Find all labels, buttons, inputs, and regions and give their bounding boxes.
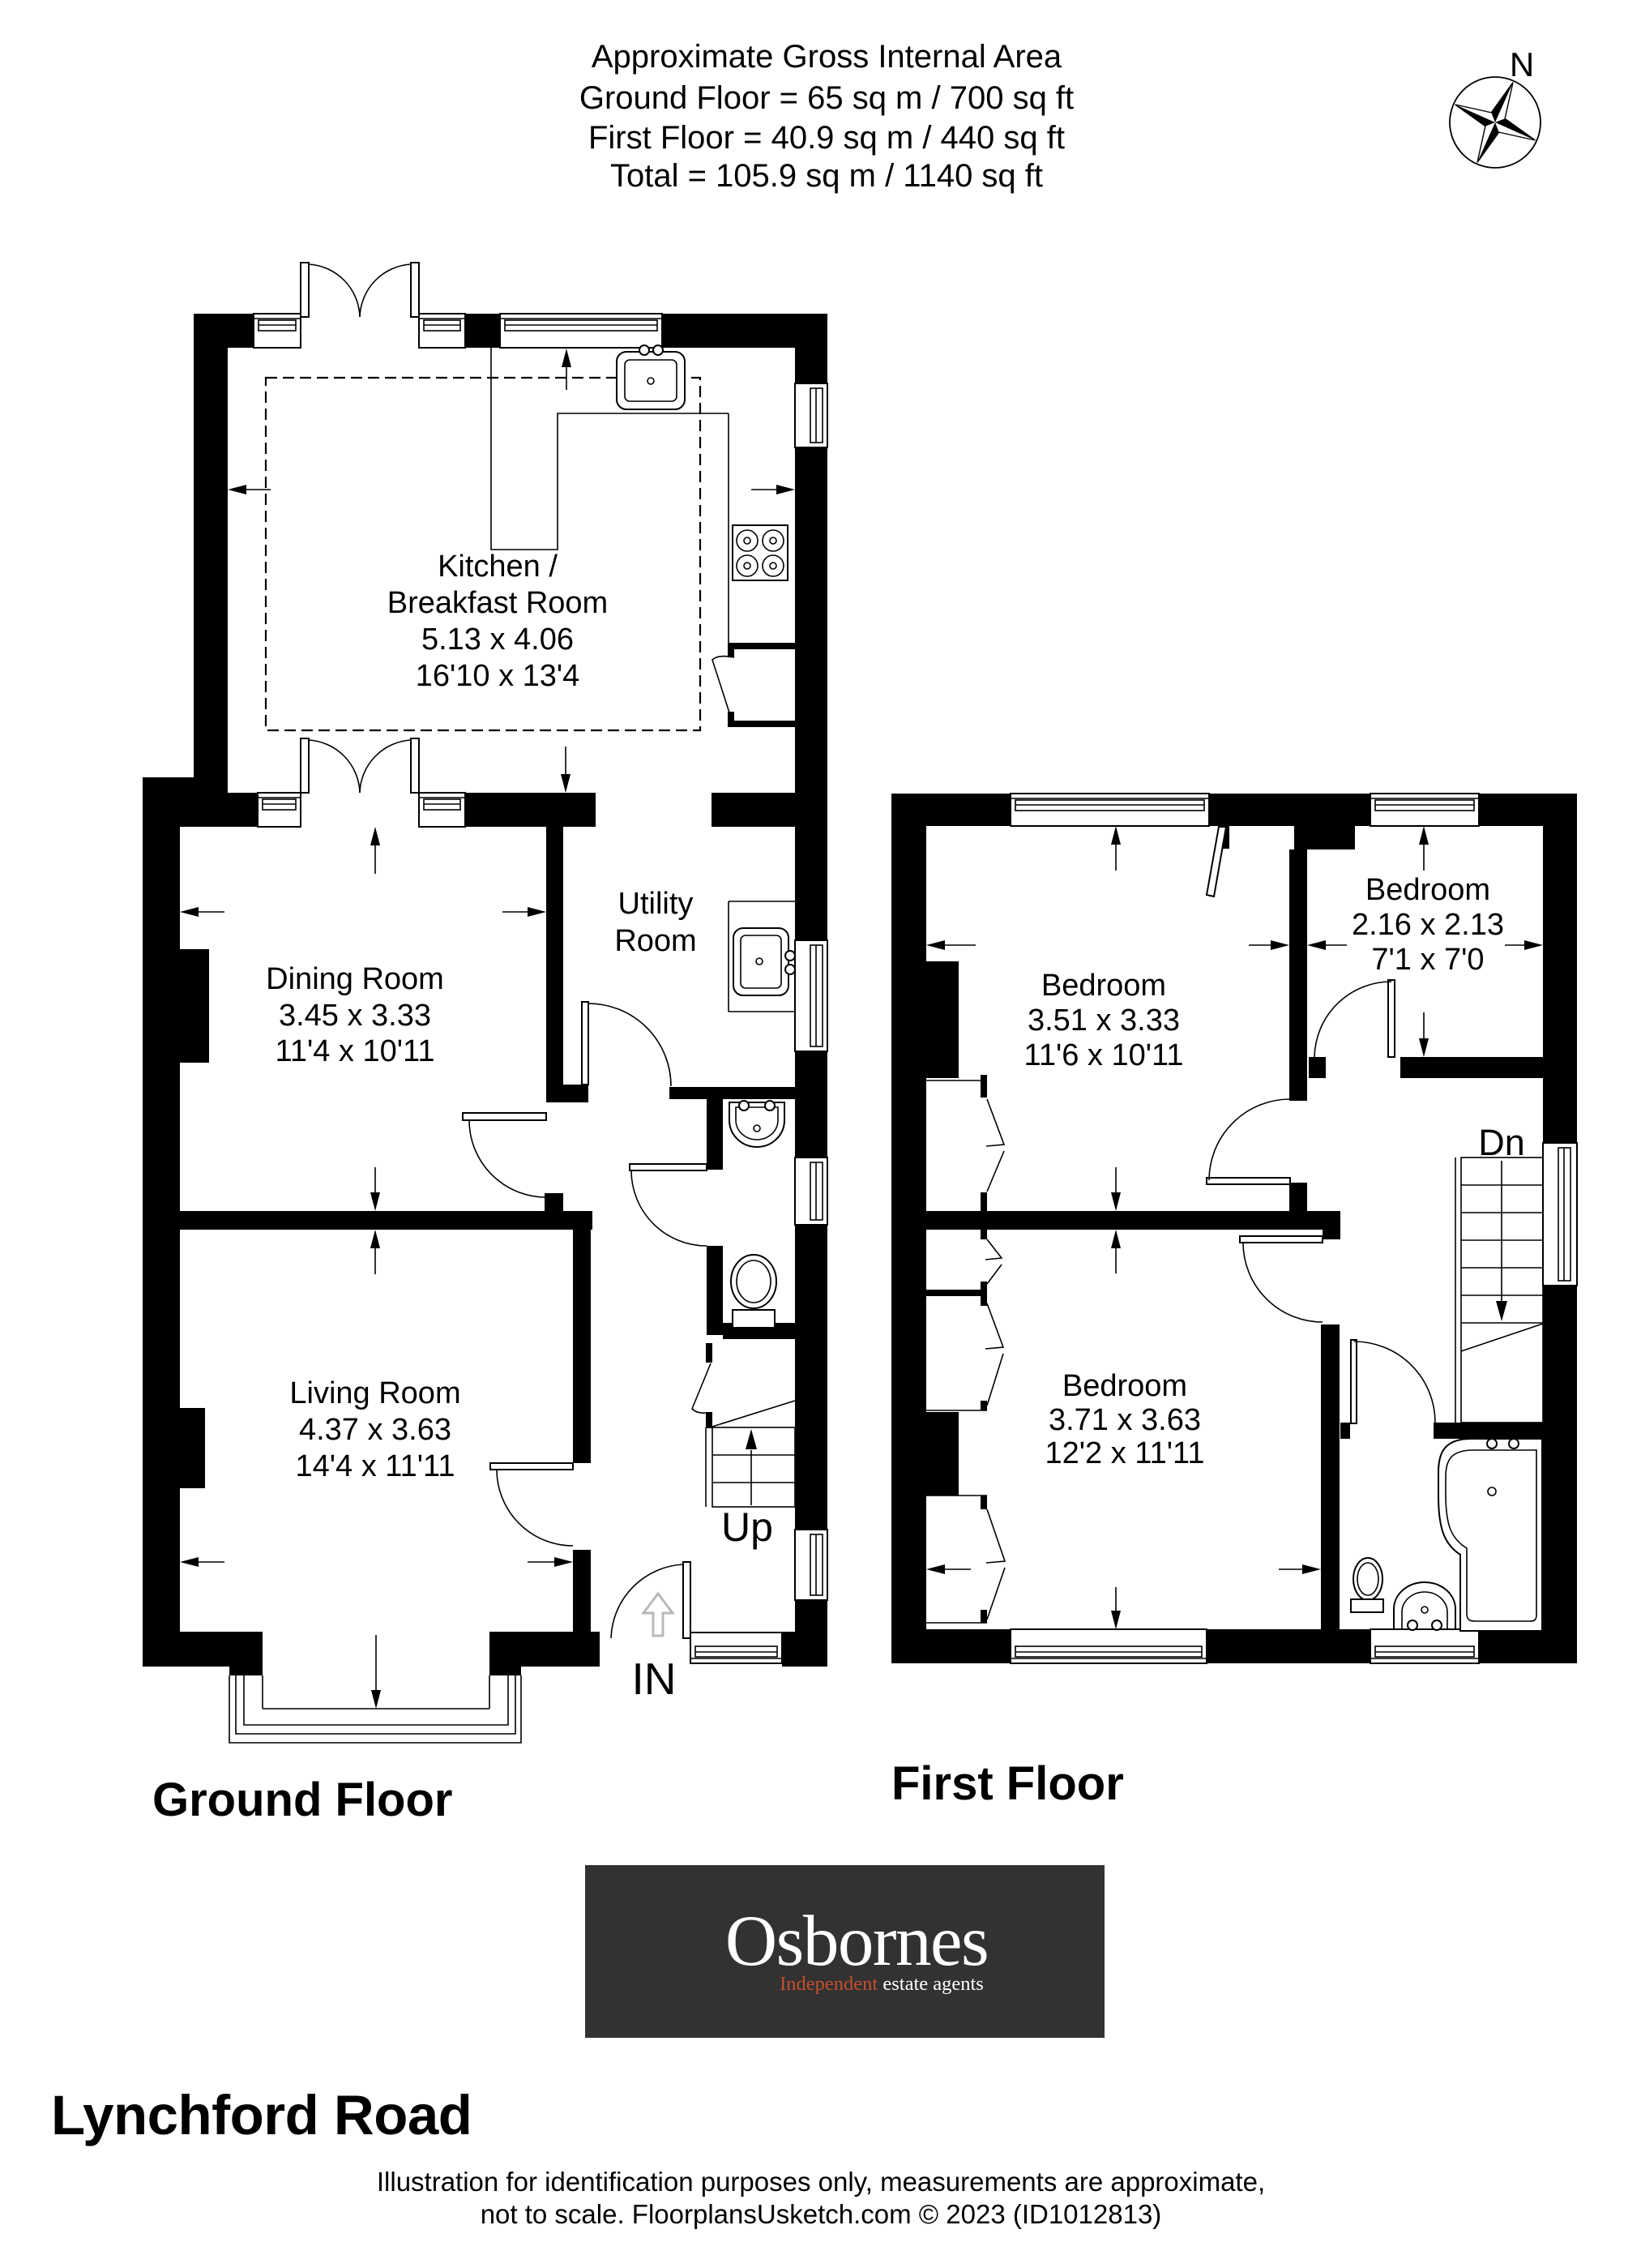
svg-text:Total = 105.9 sq m / 1140 sq f: Total = 105.9 sq m / 1140 sq ft [610, 158, 1043, 194]
svg-text:Independent estate agents: Independent estate agents [780, 1973, 984, 1995]
svg-text:11'6 x 10'11: 11'6 x 10'11 [1024, 1038, 1184, 1072]
svg-text:N: N [1510, 45, 1534, 83]
svg-text:Living Room: Living Room [289, 1376, 460, 1410]
svg-text:Breakfast Room: Breakfast Room [387, 586, 608, 620]
svg-text:First Floor = 40.9 sq m / 440: First Floor = 40.9 sq m / 440 sq ft [588, 120, 1065, 156]
svg-text:11'4 x 10'11: 11'4 x 10'11 [276, 1034, 435, 1068]
svg-text:4.37 x 3.63: 4.37 x 3.63 [299, 1413, 451, 1447]
svg-text:3.51 x 3.33: 3.51 x 3.33 [1028, 1003, 1180, 1038]
svg-text:Kitchen /: Kitchen / [438, 550, 558, 584]
svg-text:5.13 x 4.06: 5.13 x 4.06 [421, 623, 574, 657]
svg-text:not to scale. FloorplansUsketc: not to scale. FloorplansUsketch.com © 20… [481, 2199, 1162, 2229]
svg-text:12'2 x 11'11: 12'2 x 11'11 [1045, 1436, 1205, 1470]
svg-text:3.45 x 3.33: 3.45 x 3.33 [279, 999, 431, 1033]
svg-text:Up: Up [721, 1504, 773, 1550]
svg-text:Ground Floor: Ground Floor [152, 1774, 453, 1826]
svg-text:Utility: Utility [618, 887, 694, 921]
svg-text:Dining Room: Dining Room [266, 962, 444, 996]
svg-text:Dn: Dn [1478, 1122, 1525, 1163]
svg-text:3.71 x 3.63: 3.71 x 3.63 [1049, 1403, 1201, 1437]
svg-text:7'1 x 7'0: 7'1 x 7'0 [1371, 943, 1484, 977]
svg-text:Bedroom: Bedroom [1365, 873, 1490, 907]
svg-text:Illustration for identificatio: Illustration for identification purposes… [377, 2167, 1265, 2197]
svg-text:Lynchford Road: Lynchford Road [51, 2084, 472, 2146]
svg-text:Bedroom: Bedroom [1041, 969, 1166, 1003]
svg-text:IN: IN [632, 1654, 677, 1704]
svg-text:Ground Floor = 65 sq m / 700 s: Ground Floor = 65 sq m / 700 sq ft [579, 80, 1074, 116]
svg-text:Osbornes: Osbornes [725, 1902, 988, 1981]
svg-text:Bedroom: Bedroom [1062, 1369, 1187, 1403]
svg-text:16'10 x 13'4: 16'10 x 13'4 [416, 659, 580, 693]
svg-text:2.16 x 2.13: 2.16 x 2.13 [1352, 908, 1504, 942]
svg-text:14'4 x 11'11: 14'4 x 11'11 [296, 1449, 455, 1483]
svg-text:First Floor: First Floor [891, 1757, 1124, 1810]
svg-text:Approximate Gross Internal Are: Approximate Gross Internal Area [592, 39, 1062, 75]
svg-text:Room: Room [614, 924, 696, 958]
